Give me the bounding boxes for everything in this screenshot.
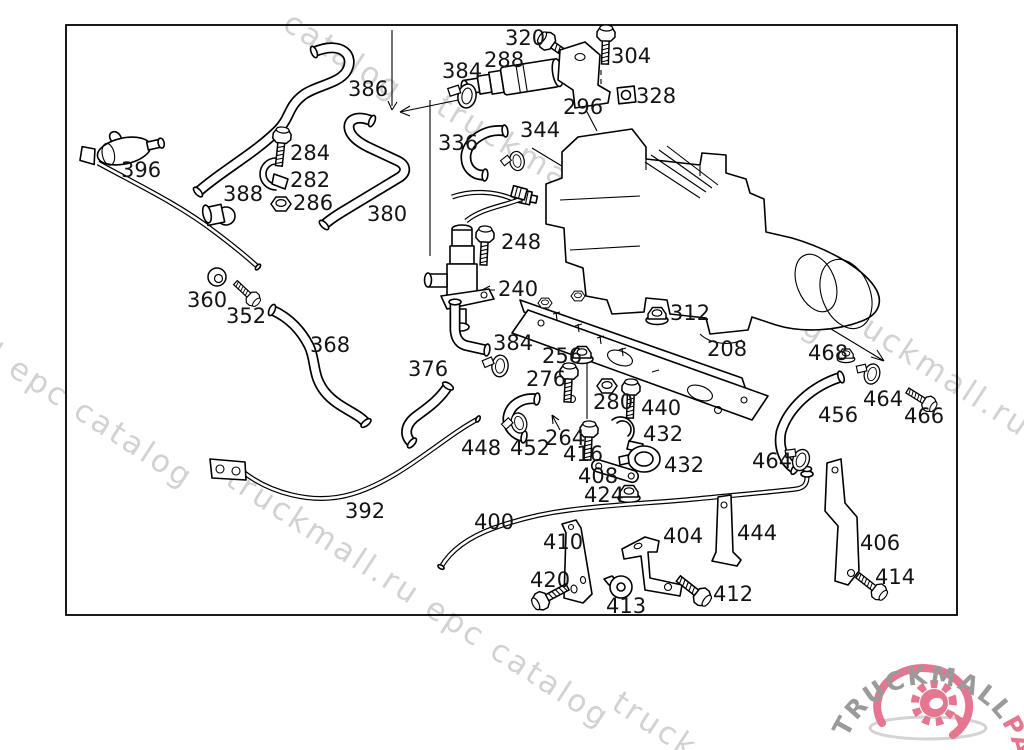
part-label-448-30: 448	[461, 436, 501, 460]
part-label-282-10: 282	[290, 168, 330, 192]
part-label-208-18: 208	[707, 337, 747, 361]
part-label-416-33: 416	[563, 442, 603, 466]
diagram-canvas: catalogtruckmall.ru epc catalogl epc cat…	[0, 0, 1024, 750]
part-label-396-13: 396	[121, 158, 161, 182]
part-label-360-19: 360	[187, 288, 227, 312]
part-label-456-49: 456	[818, 403, 858, 427]
part-label-466-48: 466	[904, 404, 944, 428]
part-label-468-46: 468	[808, 341, 848, 365]
part-label-413-41: 413	[606, 594, 646, 618]
part-label-410-38: 410	[543, 530, 583, 554]
nut-328	[617, 86, 636, 104]
part-label-352-20: 352	[226, 304, 266, 328]
part-label-248-15: 248	[501, 230, 541, 254]
part-label-464-50: 464	[752, 449, 792, 473]
part-label-240-16: 240	[498, 277, 538, 301]
part-label-440-27: 440	[641, 396, 681, 420]
part-label-432-28: 432	[643, 422, 683, 446]
part-label-424-35: 424	[584, 483, 624, 507]
parts-diagram-page: catalogtruckmall.ru epc catalogl epc cat…	[0, 0, 1024, 750]
part-label-288-1: 288	[484, 48, 524, 72]
part-label-412-42: 412	[713, 582, 753, 606]
part-label-444-43: 444	[737, 521, 777, 545]
part-label-368-21: 368	[310, 333, 350, 357]
part-label-384-23: 384	[493, 331, 533, 355]
plate-nut	[538, 298, 552, 308]
part-label-414-45: 414	[875, 565, 915, 589]
plate-nut	[571, 291, 585, 301]
part-label-312-17: 312	[670, 301, 710, 325]
part-label-276-25: 276	[526, 367, 566, 391]
part-label-336-7: 336	[438, 131, 478, 155]
part-label-256-24: 256	[542, 344, 582, 368]
part-label-344-6: 344	[520, 118, 560, 142]
part-label-286-11: 286	[293, 191, 333, 215]
part-label-296-5: 296	[563, 95, 603, 119]
part-label-284-9: 284	[290, 141, 330, 165]
part-label-328-4: 328	[636, 84, 676, 108]
part-label-432-29: 432	[664, 453, 704, 477]
part-label-304-3: 304	[611, 44, 651, 68]
part-label-380-14: 380	[367, 202, 407, 226]
nut-286	[271, 197, 291, 211]
part-label-392-37: 392	[345, 499, 385, 523]
part-label-420-39: 420	[530, 568, 570, 592]
part-label-384-2: 384	[442, 59, 482, 83]
grommet-360	[208, 268, 226, 286]
part-label-320-0: 320	[505, 26, 545, 50]
clamp-388	[201, 204, 235, 225]
part-label-376-22: 376	[408, 357, 448, 381]
part-label-464-47: 464	[863, 387, 903, 411]
part-label-386-8: 386	[348, 77, 388, 101]
part-label-280-26: 280	[593, 390, 633, 414]
part-label-400-36: 400	[474, 510, 514, 534]
part-label-404-40: 404	[663, 524, 703, 548]
part-label-406-44: 406	[860, 531, 900, 555]
part-label-388-12: 388	[223, 182, 263, 206]
